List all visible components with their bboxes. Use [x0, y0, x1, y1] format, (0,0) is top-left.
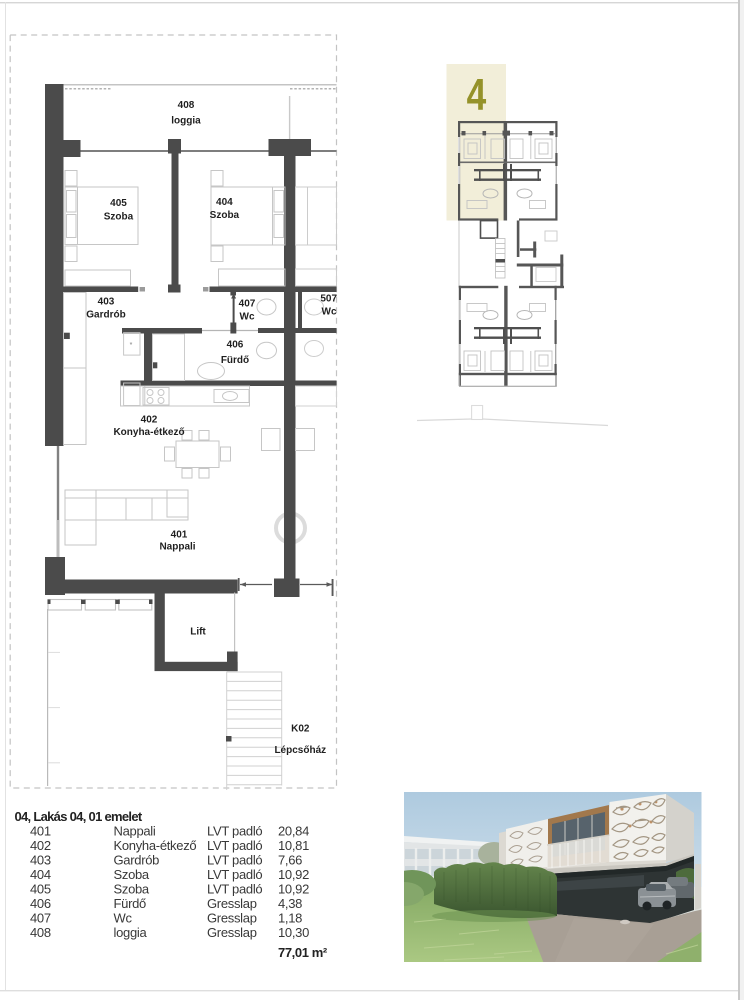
svg-text:Szoba: Szoba — [114, 867, 150, 882]
svg-text:402: 402 — [30, 838, 51, 853]
svg-text:10,92: 10,92 — [278, 882, 309, 897]
svg-text:Szoba: Szoba — [104, 211, 134, 222]
svg-text:408: 408 — [178, 100, 195, 111]
svg-text:Gardrób: Gardrób — [86, 309, 125, 320]
svg-text:1,18: 1,18 — [278, 911, 302, 926]
svg-text:401: 401 — [171, 529, 188, 540]
svg-text:LVT padló: LVT padló — [207, 867, 262, 882]
svg-text:Lift: Lift — [190, 627, 206, 638]
svg-text:Wc: Wc — [322, 306, 337, 317]
svg-text:406: 406 — [227, 340, 244, 351]
svg-text:04, Lakás 04, 01 emelet: 04, Lakás 04, 01 emelet — [15, 809, 143, 824]
svg-text:LVT padló: LVT padló — [207, 824, 262, 839]
svg-text:7,66: 7,66 — [278, 853, 302, 868]
svg-text:77,01 m²: 77,01 m² — [278, 945, 328, 960]
svg-text:LVT padló: LVT padló — [207, 853, 262, 868]
svg-text:Szoba: Szoba — [210, 210, 240, 221]
svg-text:507: 507 — [320, 293, 337, 304]
svg-text:Szoba: Szoba — [114, 882, 150, 897]
svg-text:405: 405 — [110, 198, 127, 209]
svg-text:Konyha-étkező: Konyha-étkező — [114, 838, 197, 853]
svg-text:Nappali: Nappali — [114, 824, 156, 839]
svg-text:Wc: Wc — [114, 911, 133, 926]
svg-text:LVT padló: LVT padló — [207, 838, 262, 853]
svg-text:Gardrób: Gardrób — [114, 853, 160, 868]
svg-text:Lépcsőház: Lépcsőház — [274, 745, 326, 756]
svg-text:20,84: 20,84 — [278, 824, 309, 839]
svg-text:Gresslap: Gresslap — [207, 896, 257, 911]
svg-text:403: 403 — [98, 296, 115, 307]
svg-text:408: 408 — [30, 925, 51, 940]
svg-text:401: 401 — [30, 824, 51, 839]
svg-text:4,38: 4,38 — [278, 896, 302, 911]
svg-text:403: 403 — [30, 853, 51, 868]
svg-text:LVT padló: LVT padló — [207, 882, 262, 897]
svg-text:407: 407 — [239, 298, 256, 309]
svg-text:K02: K02 — [291, 723, 310, 734]
svg-text:405: 405 — [30, 882, 51, 897]
svg-text:Konyha-étkező: Konyha-étkező — [113, 427, 184, 438]
svg-text:404: 404 — [216, 197, 233, 208]
svg-text:407: 407 — [30, 911, 51, 926]
svg-text:402: 402 — [141, 414, 158, 425]
svg-text:Gresslap: Gresslap — [207, 925, 257, 940]
svg-text:10,92: 10,92 — [278, 867, 309, 882]
svg-text:10,81: 10,81 — [278, 838, 309, 853]
svg-text:406: 406 — [30, 896, 51, 911]
svg-text:*: * — [130, 342, 133, 349]
svg-text:Wc: Wc — [240, 311, 255, 322]
svg-text:Nappali: Nappali — [159, 541, 195, 552]
svg-text:loggia: loggia — [114, 925, 148, 940]
svg-text:Fürdő: Fürdő — [114, 896, 147, 911]
svg-text:4: 4 — [467, 70, 487, 120]
svg-text:404: 404 — [30, 867, 51, 882]
svg-text:10,30: 10,30 — [278, 925, 309, 940]
svg-text:loggia: loggia — [171, 115, 201, 126]
svg-text:Fürdő: Fürdő — [221, 355, 249, 366]
svg-text:Gresslap: Gresslap — [207, 911, 257, 926]
